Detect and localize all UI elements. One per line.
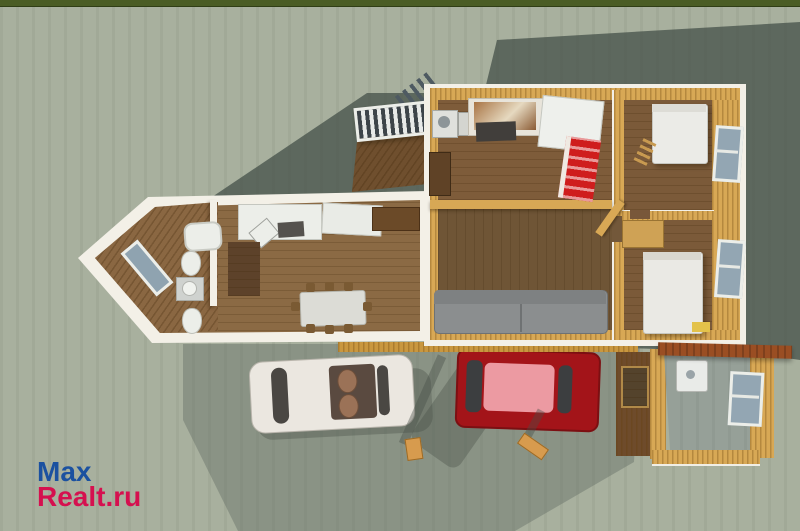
annex-shuttered-window [621,366,649,408]
main-block [424,84,746,346]
wardrobe [622,220,664,248]
red-car [455,348,598,429]
annex-gold-wall-left [650,349,666,459]
bedroom1-window [712,125,744,183]
stove-cooktop [476,121,517,141]
annex-window [728,371,765,427]
hedge-strip [0,0,800,7]
red-car-windshield [465,360,483,413]
bed-headboard [652,104,706,112]
stove-cooktop [278,221,305,238]
wooden-stake [405,437,424,461]
watermark-line2: Realt.ru [37,484,141,509]
white-car-windshield [271,367,290,424]
dining-chair [291,302,300,311]
white-car [248,354,413,432]
toilet [182,308,202,334]
bathroom-wall [210,200,217,306]
washing-machine-door [438,116,450,128]
dining-chair [306,283,315,292]
bed-headboard [643,252,701,260]
dining-chair [363,302,372,311]
dining-chair [325,325,334,334]
bedroom2-window [714,239,746,299]
dining-chair [344,282,353,291]
red-car-roof [483,363,555,413]
bed [652,104,708,164]
watermark: Max Realt.ru [37,459,141,509]
sink-bowl [182,281,197,296]
sofa-seat-split [520,304,522,332]
wall-desk [429,152,451,196]
sofa-back-cushion [434,290,606,304]
dining-chair [344,324,353,333]
toilet [181,251,201,276]
red-car-rear-window [557,365,573,413]
dining-chair [325,282,334,291]
wooden-side-table [372,207,420,231]
annex-gold-wall-bottom [652,450,760,466]
annex-fixture-drain [686,370,695,379]
yellow-rug [692,322,710,332]
bedroom-doorway [630,210,650,219]
bathtub [183,221,223,253]
render-canvas: Max Realt.ru [0,0,800,531]
ceiling-beam [430,200,612,209]
dining-table [299,290,366,327]
dining-chair [306,324,315,333]
stair-shelf [228,242,260,296]
